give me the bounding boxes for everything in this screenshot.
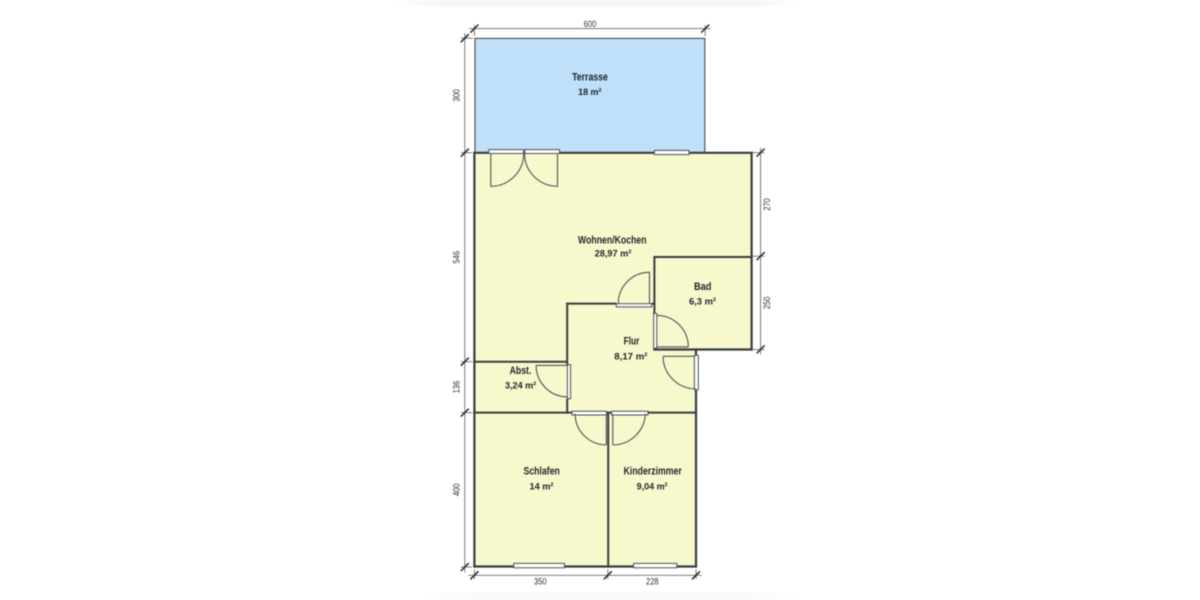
svg-text:28,97 m²: 28,97 m² [595, 249, 632, 260]
svg-text:546: 546 [451, 251, 461, 264]
svg-text:Abst.: Abst. [510, 365, 532, 377]
svg-text:Bad: Bad [694, 281, 712, 293]
svg-text:600: 600 [584, 19, 597, 29]
svg-text:Wohnen/Kochen: Wohnen/Kochen [578, 234, 647, 246]
svg-text:8,17 m²: 8,17 m² [614, 352, 647, 363]
svg-text:250: 250 [762, 297, 772, 310]
svg-text:Flur: Flur [624, 336, 640, 348]
svg-text:Kinderzimmer: Kinderzimmer [624, 466, 683, 478]
svg-text:6,3 m²: 6,3 m² [689, 297, 716, 308]
svg-text:Terrasse: Terrasse [572, 72, 608, 84]
svg-text:14 m²: 14 m² [530, 481, 554, 492]
svg-text:300: 300 [451, 89, 461, 102]
svg-text:18 m²: 18 m² [578, 87, 601, 98]
svg-text:350: 350 [534, 576, 547, 586]
svg-text:270: 270 [762, 198, 772, 211]
svg-text:Schlafen: Schlafen [524, 466, 561, 478]
svg-text:136: 136 [451, 381, 461, 394]
svg-text:9,04 m²: 9,04 m² [637, 481, 668, 492]
svg-text:400: 400 [451, 484, 461, 497]
svg-text:3,24 m²: 3,24 m² [505, 381, 536, 392]
svg-text:228: 228 [646, 576, 659, 586]
